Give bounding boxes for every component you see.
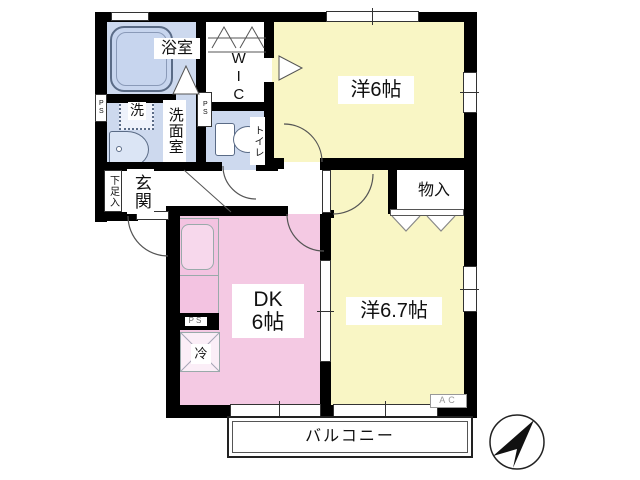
entrance-door-arc bbox=[128, 216, 168, 256]
wall-top bbox=[95, 12, 477, 22]
window-top-bath bbox=[111, 12, 149, 21]
wall-dk-left bbox=[166, 206, 180, 418]
wall-storage-left bbox=[388, 170, 397, 214]
label-ps-dk-box: PS bbox=[173, 313, 219, 330]
wall-dk-western67-bottom bbox=[320, 362, 331, 412]
label-balcony: バルコニー bbox=[298, 426, 402, 447]
label-washer: 洗 bbox=[128, 102, 146, 120]
wall-western6-bottom bbox=[320, 158, 477, 170]
label-dk-line1: DK bbox=[253, 288, 282, 311]
storage-bottom-track bbox=[390, 209, 464, 216]
floor-plan: 浴室 洗 洗面室 WIC トイレ PS PS 洋6帖 玄関 下足入 物入 DK … bbox=[0, 0, 640, 480]
kitchen-counter-divider bbox=[176, 275, 219, 276]
label-ps-left: PS bbox=[95, 94, 107, 122]
label-ps-dk: PS bbox=[185, 317, 208, 326]
sliding-door-tick bbox=[317, 311, 334, 312]
toilet-tank bbox=[215, 123, 235, 156]
label-storage: 物入 bbox=[410, 180, 458, 202]
label-washroom: 洗面室 bbox=[163, 100, 186, 162]
kitchen-sink bbox=[181, 224, 214, 270]
label-western6: 洋6帖 bbox=[338, 76, 414, 104]
wall-western6-bottom-nub bbox=[272, 158, 284, 169]
label-shoe-cabinet: 下足入 bbox=[104, 170, 122, 212]
label-ps-niche: PS bbox=[199, 95, 211, 123]
bathtub bbox=[110, 26, 173, 92]
wall-wic-right-bottom bbox=[264, 82, 274, 170]
window-right-western6-tick bbox=[460, 92, 479, 93]
label-bath: 浴室 bbox=[154, 38, 200, 59]
label-dk: DK 6帖 bbox=[232, 284, 304, 338]
window-top-western6-tick bbox=[372, 8, 373, 25]
wall-dk-top bbox=[166, 206, 288, 216]
label-toilet: トイレ bbox=[250, 117, 265, 165]
wall-wic-right-top bbox=[264, 20, 274, 58]
label-western67: 洋6.7帖 bbox=[346, 297, 442, 325]
window-right-western67-tick bbox=[460, 289, 479, 290]
western67-door-leaf bbox=[322, 170, 331, 213]
compass-north-icon bbox=[490, 415, 544, 469]
wall-dk-western67-top bbox=[320, 214, 331, 262]
washbasin-faucet-dot bbox=[116, 146, 122, 152]
wall-bath-wic bbox=[196, 20, 206, 98]
toilet-door-arc bbox=[223, 166, 256, 199]
label-fridge: 冷 bbox=[191, 344, 211, 364]
label-ac: AC bbox=[430, 394, 467, 408]
label-dk-line2: 6帖 bbox=[252, 311, 285, 334]
label-wic: WIC bbox=[227, 48, 249, 106]
label-entrance: 玄関 bbox=[127, 169, 154, 214]
